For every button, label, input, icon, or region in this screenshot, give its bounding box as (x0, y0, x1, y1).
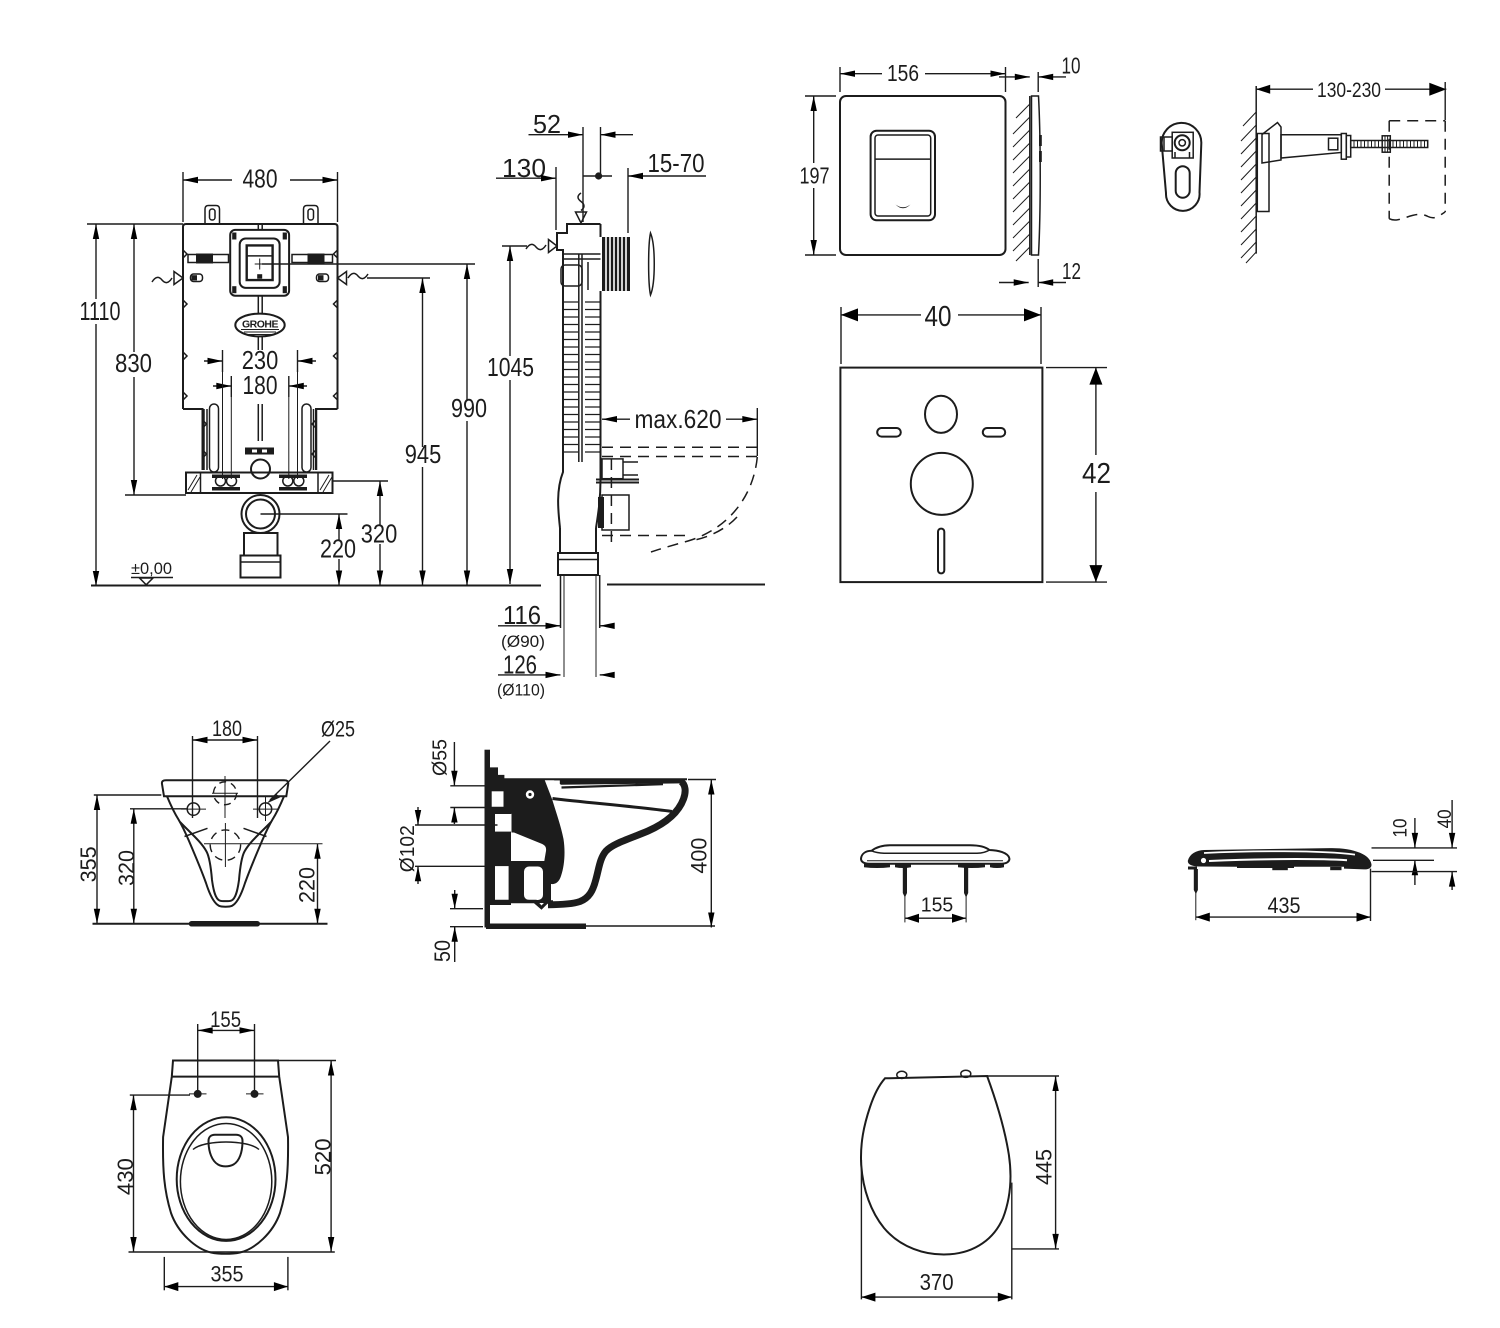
svg-text:155: 155 (210, 1007, 241, 1032)
svg-text:12: 12 (1062, 258, 1081, 284)
svg-text:220: 220 (294, 867, 319, 903)
svg-text:Ø102: Ø102 (397, 825, 419, 872)
svg-text:10: 10 (1391, 819, 1412, 838)
svg-text:197: 197 (800, 163, 830, 189)
svg-text:830: 830 (115, 348, 152, 378)
svg-text:435: 435 (1268, 893, 1301, 918)
svg-text:370: 370 (920, 1269, 954, 1295)
svg-text:Ø25: Ø25 (321, 717, 355, 742)
svg-text:50: 50 (430, 940, 455, 962)
svg-text:156: 156 (887, 60, 919, 86)
svg-text:320: 320 (361, 519, 398, 549)
svg-text:1110: 1110 (80, 296, 121, 326)
svg-text:130-230: 130-230 (1317, 79, 1381, 102)
svg-text:945: 945 (405, 439, 442, 469)
svg-text:1045: 1045 (487, 352, 534, 382)
svg-text:40: 40 (1435, 809, 1456, 828)
svg-text:480: 480 (243, 164, 278, 194)
svg-text:320: 320 (114, 850, 139, 886)
svg-text:max.620: max.620 (635, 404, 722, 434)
svg-text:220: 220 (320, 534, 356, 564)
svg-text:990: 990 (451, 393, 487, 423)
svg-text:355: 355 (76, 846, 101, 882)
svg-text:15-70: 15-70 (648, 148, 705, 178)
svg-text:(Ø90): (Ø90) (501, 632, 545, 651)
svg-text:520: 520 (311, 1138, 336, 1175)
svg-text:180: 180 (243, 370, 278, 400)
svg-text:40: 40 (925, 301, 952, 333)
svg-text:(Ø110): (Ø110) (497, 681, 545, 700)
svg-text:155: 155 (921, 895, 954, 917)
svg-text:430: 430 (113, 1158, 138, 1195)
svg-text:180: 180 (212, 716, 242, 741)
svg-text:355: 355 (211, 1262, 244, 1287)
svg-text:445: 445 (1032, 1149, 1057, 1185)
svg-text:GROHE: GROHE (242, 319, 279, 331)
svg-text:42: 42 (1082, 458, 1111, 490)
svg-text:400: 400 (686, 838, 711, 874)
svg-text:Ø55: Ø55 (430, 739, 452, 776)
svg-text:±0,00: ±0,00 (131, 559, 172, 578)
svg-text:10: 10 (1062, 53, 1081, 79)
